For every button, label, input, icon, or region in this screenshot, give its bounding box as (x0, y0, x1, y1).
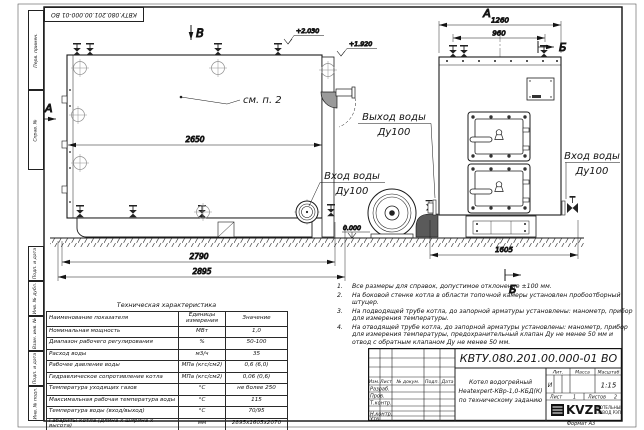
dim-960: 960 (492, 30, 506, 38)
spec-row: Диапазон рабочего регулирования%50-100 (47, 338, 288, 350)
margin-cell-perv-primen: Перв. примен. (28, 10, 44, 90)
mass-label: Масса (575, 370, 590, 376)
designation: КВТУ.080.201.00.000-01 ВО (460, 352, 618, 365)
spec-row: Температура уходящих газов°Сне более 250 (47, 384, 288, 396)
dim-1605: 1605 (495, 246, 513, 254)
blower-fan (368, 189, 416, 238)
margin-cell-inv-podl: Инв. № подл. (28, 386, 44, 421)
dim-2895: 2895 (192, 267, 211, 276)
dim-2650: 2650 (185, 135, 204, 144)
margin-cell-inv-dubl: Инв. № дубл. (28, 281, 44, 316)
row-utv: Утв. (370, 416, 381, 421)
view-marker-a-side: А (44, 102, 53, 115)
elev-1920: +1.920 (349, 41, 372, 48)
view-marker-a: А (482, 7, 491, 20)
outlet-dn-label: Ду100 (377, 127, 411, 138)
company-line2: ЗАВОД РЭП (597, 410, 621, 415)
see-note-text: см. п. 2 (243, 95, 282, 106)
spec-row: Рабочее давление водыМПа (кгс/см2)0,6 (6… (47, 361, 288, 373)
inlet-label: Вход воды (324, 171, 380, 182)
base-plinth (439, 215, 561, 237)
spec-table-title: Техническая характеристика (46, 301, 287, 309)
spec-table-section: Техническая характеристика Наименование … (46, 301, 287, 430)
inlet-connection (562, 196, 578, 215)
elev-2030: +2.030 (296, 28, 319, 35)
sheets-label: Листов (587, 395, 606, 401)
col-doc: № докум. (396, 379, 420, 385)
inlet-dn-label: Ду100 (335, 186, 369, 197)
row-tkontr: Т.контр. (370, 401, 392, 407)
drawing-sheet: 2650 2790 2895 1260 960 1605 (0, 0, 644, 430)
title-block: КВТУ.080.201.00.000-01 ВО Котел водогрей… (368, 348, 622, 421)
sheet-label: Лист (549, 395, 562, 401)
col-date: Дата (441, 379, 454, 385)
margin-cell-vzam-inv: Взам. инв. № (28, 316, 44, 351)
spec-header-row: Наименование показателя Единицы измерени… (47, 311, 288, 326)
front-view (428, 30, 578, 250)
spec-row: Гидравлическое сопротивление котлаМПа (к… (47, 372, 288, 384)
upper-door (468, 112, 530, 161)
front-view-valves (449, 45, 548, 57)
dim-2790: 2790 (189, 252, 208, 261)
margin-cell-podp-2: Подп. и дата (28, 351, 44, 386)
company-logo: KVZR КОТЕЛЬНЫЙ ЗАВОД РЭП (551, 403, 622, 417)
row-prov: Пров. (370, 394, 385, 400)
door-handle (470, 189, 492, 194)
col-izm: Изм. (369, 379, 380, 385)
lit-value: И (548, 382, 553, 389)
spec-table: Наименование показателя Единицы измерени… (46, 311, 288, 430)
margin-cell-sprav: Справ. № (28, 90, 44, 170)
note-item: 2. На боковой стенке котла в области топ… (337, 292, 633, 307)
scale-value: 1:15 (601, 382, 617, 390)
format-note: Формат А3 (540, 421, 622, 427)
lower-door (468, 164, 530, 213)
view-marker-b: В (196, 26, 204, 40)
spec-row: Расход водым3/ч35 (47, 349, 288, 361)
dim-1260: 1260 (491, 17, 509, 25)
col-list: Лист (379, 379, 392, 385)
product-name-line1: Котел водогрейный (469, 379, 532, 386)
elev-0000: 0.000 (343, 225, 361, 232)
section-marker-b-top: Б (559, 41, 567, 54)
col-sign: Подп. (425, 379, 439, 385)
sheet-num: 1 (573, 395, 576, 401)
product-name-line2: Heatexpert-КВр-1,0-КБД(К) (458, 388, 542, 395)
control-panel (527, 78, 554, 100)
note-item: 3. На подводящей трубе котла, до запорно… (337, 308, 633, 323)
lit-label: Лит. (552, 370, 564, 376)
door-handle (470, 137, 492, 142)
scale-label: Масштаб (598, 370, 620, 376)
note-item: 4. На отводящей трубе котла, до запорной… (337, 324, 633, 347)
notes-list: 1. Все размеры для справок, допустимое о… (337, 283, 633, 348)
spec-row: Габариты котла (длина х ширина х высота)… (47, 418, 288, 430)
top-stamp-text: КВТУ.080.201.00.000-01 ВО (51, 11, 137, 18)
spec-row: Максимальная рабочая температура воды°С1… (47, 395, 288, 407)
inlet2-dn-label: Ду100 (575, 166, 609, 177)
top-stamp-box: КВТУ.080.201.00.000-01 ВО (44, 7, 144, 22)
row-razrab: Разраб. (370, 387, 390, 393)
spec-row: Номинальная мощностьМВт1,0 (47, 326, 288, 338)
product-name-line3: по техническому заданию (459, 397, 542, 404)
sheets-num: 2 (614, 395, 617, 401)
outlet-label: Выход воды (362, 112, 426, 123)
spec-row: Температура воды (вход/выход)°С70/95 (47, 407, 288, 419)
note-item: 1. Все размеры для справок, допустимое о… (337, 283, 633, 291)
inlet2-label: Вход воды (564, 151, 620, 162)
title-block-grid: КВТУ.080.201.00.000-01 ВО Котел водогрей… (368, 348, 622, 421)
margin-cell-podp-1: Подп. и дата (28, 246, 44, 281)
